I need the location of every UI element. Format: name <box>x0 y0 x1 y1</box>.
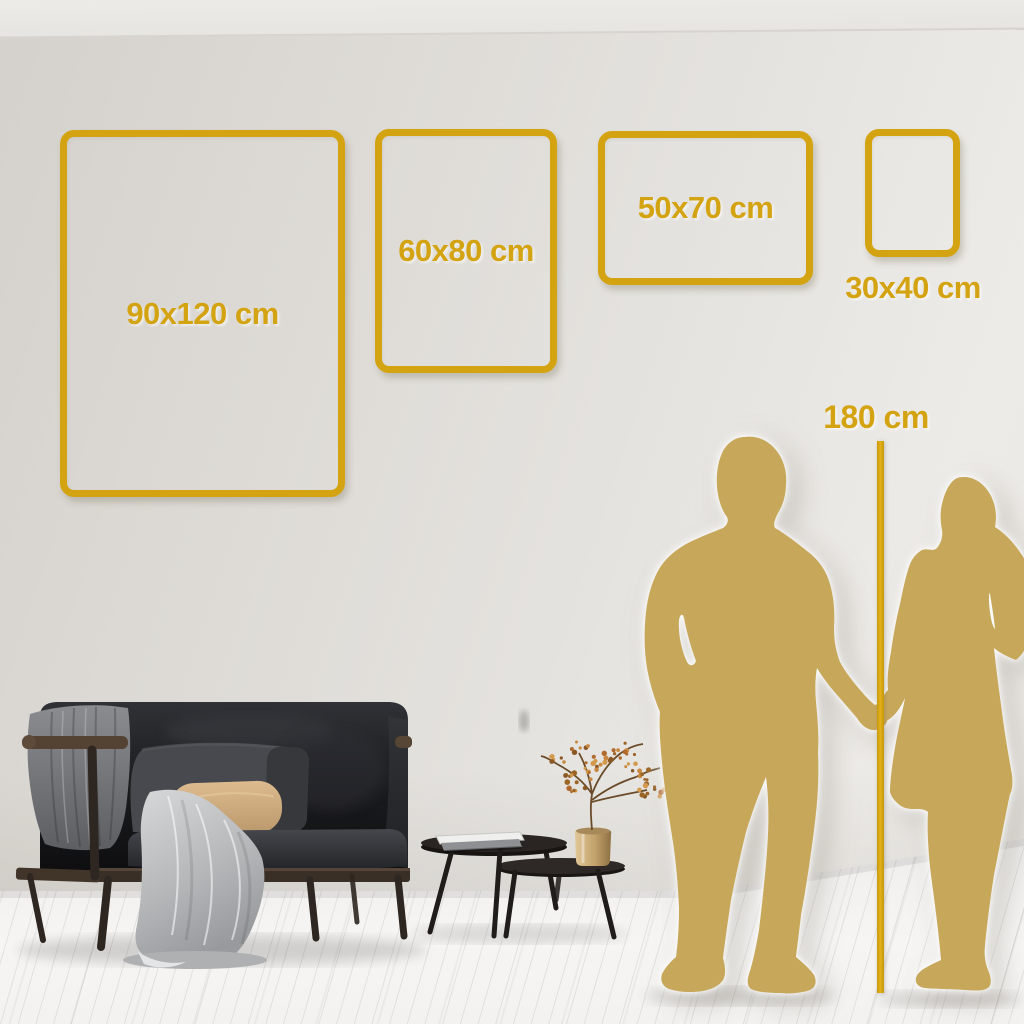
height-reference-line <box>877 441 884 993</box>
man-silhouette <box>645 437 889 994</box>
size-guide-scene: 90x120 cm 60x80 cm 50x70 cm 30x40 cm 180… <box>0 0 1024 1024</box>
woman-silhouette <box>880 477 1024 991</box>
couple-silhouette <box>0 0 1024 1024</box>
